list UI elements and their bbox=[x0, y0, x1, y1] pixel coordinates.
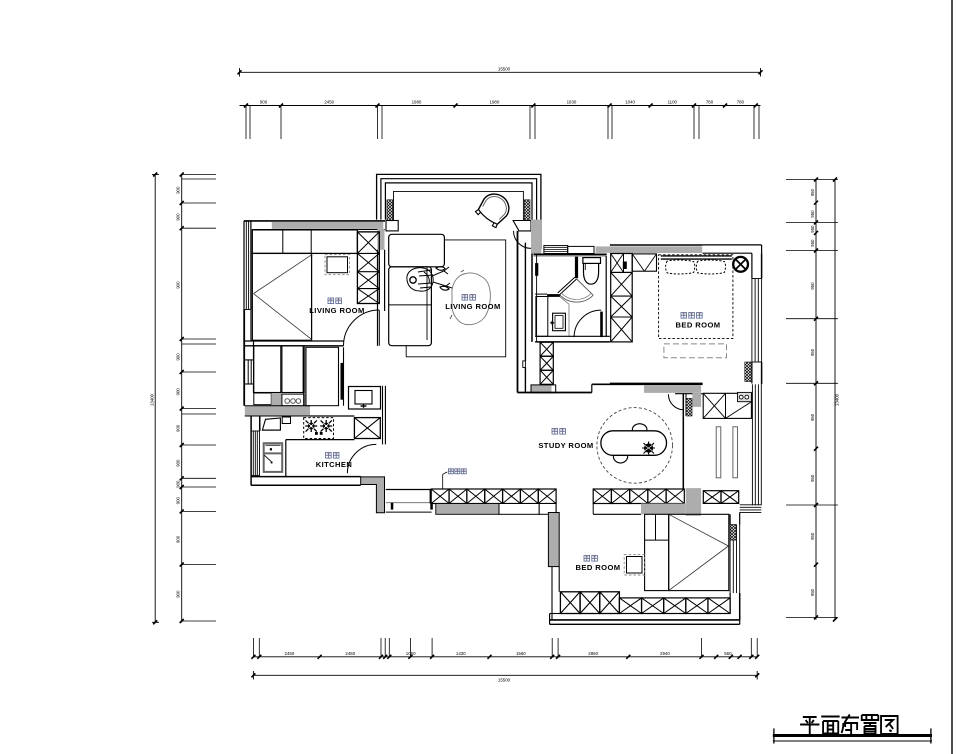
svg-text:950: 950 bbox=[810, 239, 815, 247]
svg-text:780: 780 bbox=[737, 100, 745, 105]
svg-text:13400: 13400 bbox=[149, 393, 154, 406]
svg-text:BED ROOM: BED ROOM bbox=[676, 321, 721, 330]
svg-text:900: 900 bbox=[176, 213, 181, 221]
svg-text:1100: 1100 bbox=[668, 100, 678, 105]
svg-text:950: 950 bbox=[810, 348, 815, 356]
svg-text:1050: 1050 bbox=[406, 651, 416, 656]
svg-text:950: 950 bbox=[810, 474, 815, 482]
svg-text:BED ROOM: BED ROOM bbox=[576, 563, 621, 572]
svg-text:900: 900 bbox=[176, 590, 181, 598]
svg-text:2940: 2940 bbox=[660, 651, 670, 656]
svg-text:900: 900 bbox=[176, 424, 181, 432]
svg-text:950: 950 bbox=[810, 282, 815, 290]
svg-text:STUDY ROOM: STUDY ROOM bbox=[538, 441, 593, 450]
svg-text:780: 780 bbox=[706, 100, 714, 105]
svg-text:2450: 2450 bbox=[324, 100, 334, 105]
svg-text:950: 950 bbox=[810, 532, 815, 540]
svg-text:950: 950 bbox=[810, 188, 815, 196]
svg-text:950: 950 bbox=[810, 225, 815, 233]
svg-text:1980: 1980 bbox=[412, 100, 422, 105]
svg-text:900: 900 bbox=[260, 100, 268, 105]
svg-text:950: 950 bbox=[810, 413, 815, 421]
svg-text:2860: 2860 bbox=[588, 651, 598, 656]
svg-text:LIVING ROOM: LIVING ROOM bbox=[309, 306, 364, 315]
svg-text:15500: 15500 bbox=[498, 67, 511, 72]
svg-text:900: 900 bbox=[176, 353, 181, 361]
svg-text:KITCHEN: KITCHEN bbox=[316, 460, 353, 469]
svg-text:1430: 1430 bbox=[456, 651, 466, 656]
svg-text:1040: 1040 bbox=[625, 100, 635, 105]
svg-text:900: 900 bbox=[176, 459, 181, 467]
svg-text:1930: 1930 bbox=[567, 100, 577, 105]
svg-text:900: 900 bbox=[176, 496, 181, 504]
svg-text:950: 950 bbox=[810, 210, 815, 218]
svg-text:2450: 2450 bbox=[345, 651, 355, 656]
svg-text:900: 900 bbox=[176, 281, 181, 289]
svg-text:900: 900 bbox=[176, 186, 181, 194]
svg-text:LIVING ROOM: LIVING ROOM bbox=[445, 302, 500, 311]
svg-text:900: 900 bbox=[176, 388, 181, 396]
svg-text:13400: 13400 bbox=[835, 393, 840, 406]
svg-text:560: 560 bbox=[724, 651, 732, 656]
svg-text:950: 950 bbox=[810, 588, 815, 596]
svg-text:1980: 1980 bbox=[490, 100, 500, 105]
svg-text:900: 900 bbox=[176, 535, 181, 543]
svg-text:1560: 1560 bbox=[516, 651, 526, 656]
svg-text:2450: 2450 bbox=[285, 651, 295, 656]
svg-text:900: 900 bbox=[176, 480, 181, 488]
svg-text:15500: 15500 bbox=[498, 678, 511, 683]
